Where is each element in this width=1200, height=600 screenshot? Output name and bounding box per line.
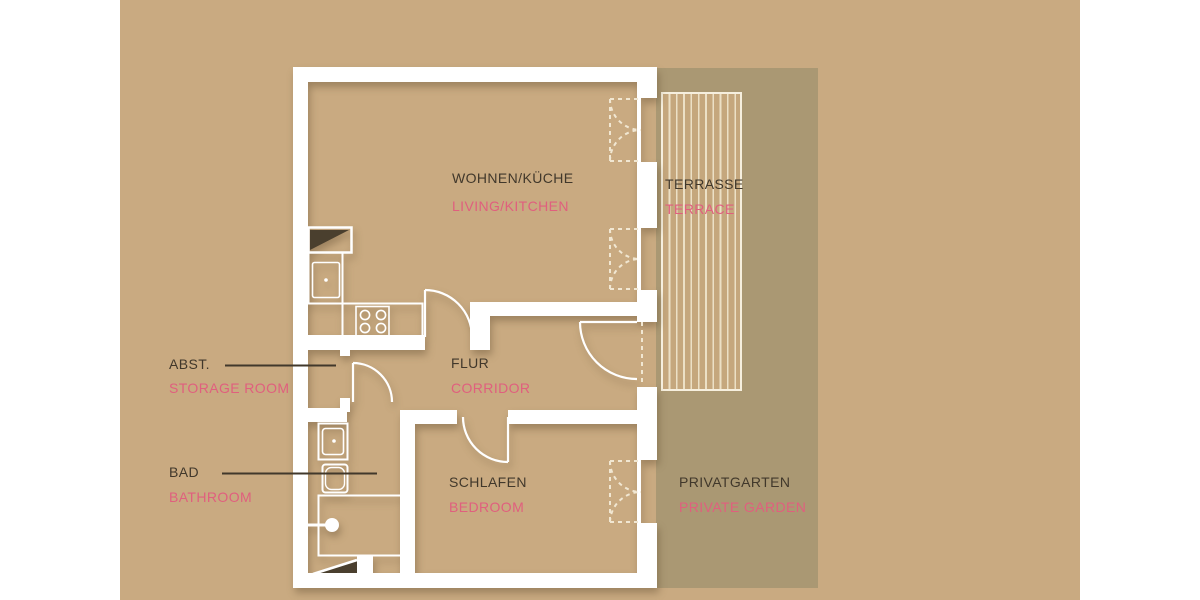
wall-right-seg — [637, 162, 657, 228]
wall-right-seg — [637, 387, 657, 460]
floor-plan-drawing — [0, 0, 1200, 600]
label-private-garden-de: PRIVATGARTEN — [679, 475, 790, 490]
label-storage-en: STORAGE ROOM — [169, 381, 289, 396]
label-living-kitchen-en: LIVING/KITCHEN — [452, 199, 569, 214]
wall-top — [293, 67, 657, 82]
window-glass-line — [637, 228, 641, 290]
wall-bottom — [293, 573, 657, 588]
label-bathroom-en: BATHROOM — [169, 490, 252, 505]
label-corridor-de: FLUR — [451, 356, 489, 371]
label-bathroom-de: BAD — [169, 465, 199, 480]
window-glass-line — [637, 98, 641, 162]
wall-right-seg — [637, 290, 657, 322]
label-bedroom-en: BEDROOM — [449, 500, 524, 515]
toilet-icon — [323, 465, 348, 493]
label-private-garden-en: PRIVATE GARDEN — [679, 500, 806, 515]
label-bedroom-de: SCHLAFEN — [449, 475, 527, 490]
label-terrace-de: TERRASSE — [665, 177, 744, 192]
label-corridor-en: CORRIDOR — [451, 381, 530, 396]
stove-icon — [343, 304, 423, 338]
wall-right-seg — [637, 523, 657, 588]
wall-corridor-bedroom — [508, 410, 637, 424]
shower-icon — [308, 496, 413, 556]
label-storage-de: ABST. — [169, 357, 210, 372]
shaft-icon — [313, 556, 373, 574]
window-glass-line — [637, 460, 641, 523]
floor-plan-page: WOHNEN/KÜCHE LIVING/KITCHEN TERRASSE TER… — [0, 0, 1200, 600]
wall-right-seg — [637, 67, 657, 98]
label-living-kitchen-de: WOHNEN/KÜCHE — [452, 171, 573, 186]
wall-left — [293, 67, 308, 588]
wall-living-corridor-right — [490, 302, 637, 316]
washbasin-icon — [319, 424, 348, 460]
wall-corridor-bedroom-stub — [415, 410, 457, 424]
shaft-icon — [309, 228, 352, 253]
wall-post — [470, 302, 490, 350]
kitchen-sink-icon — [309, 253, 343, 304]
wall-bathroom-top — [308, 408, 347, 422]
label-terrace-en: TERRACE — [665, 202, 735, 217]
